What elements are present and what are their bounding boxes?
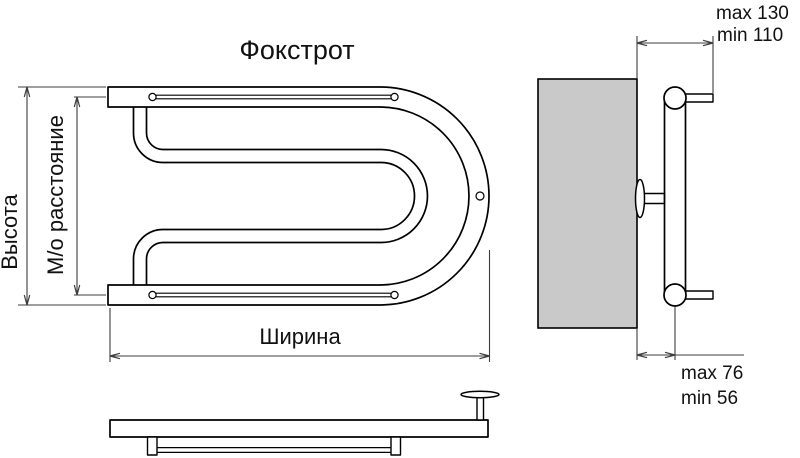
vent-cap-disc — [461, 391, 499, 397]
left-stub — [148, 437, 158, 455]
bottom-connection-stub — [685, 291, 713, 299]
bottom-view — [110, 391, 499, 455]
towel-radiator-drawing: Фокстрот Высота М/о расстояние Ширина ma… — [0, 0, 800, 458]
diagram-title: Фокстрот — [239, 35, 354, 65]
vent-hole — [476, 192, 484, 200]
inner-tube-inner-contour — [147, 107, 428, 285]
width-dimension-label: Ширина — [259, 324, 341, 349]
front-view — [108, 87, 489, 305]
bar-top-projection — [110, 420, 488, 437]
wall-offset-top-min-label: min 110 — [717, 25, 783, 46]
wall-offset-bottom-max-label: max 76 — [681, 363, 743, 384]
wall-offset-bottom-min-label: min 56 — [681, 388, 738, 409]
collector-loop-outline — [108, 87, 489, 305]
height-dimension-label: Высота — [0, 193, 22, 269]
axis-distance-dimension — [74, 97, 106, 295]
wall — [538, 79, 637, 328]
vent-stem — [477, 397, 484, 420]
right-stub — [391, 437, 401, 455]
inner-tube-outer-contour — [134, 107, 415, 285]
wall-offset-bottom-dimension — [637, 307, 744, 360]
axis-distance-dimension-label: М/о расстояние — [43, 115, 68, 275]
top-connection-stub — [685, 94, 713, 102]
drawing-svg: Фокстрот Высота М/о расстояние Ширина ma… — [0, 0, 800, 458]
wall-offset-top-max-label: max 130 — [716, 3, 789, 24]
bottom-ball-end — [664, 284, 686, 306]
side-view — [538, 79, 713, 328]
top-ball-end — [664, 87, 686, 109]
wall-offset-top-dimension — [637, 36, 713, 93]
bracket-flange — [636, 180, 645, 218]
